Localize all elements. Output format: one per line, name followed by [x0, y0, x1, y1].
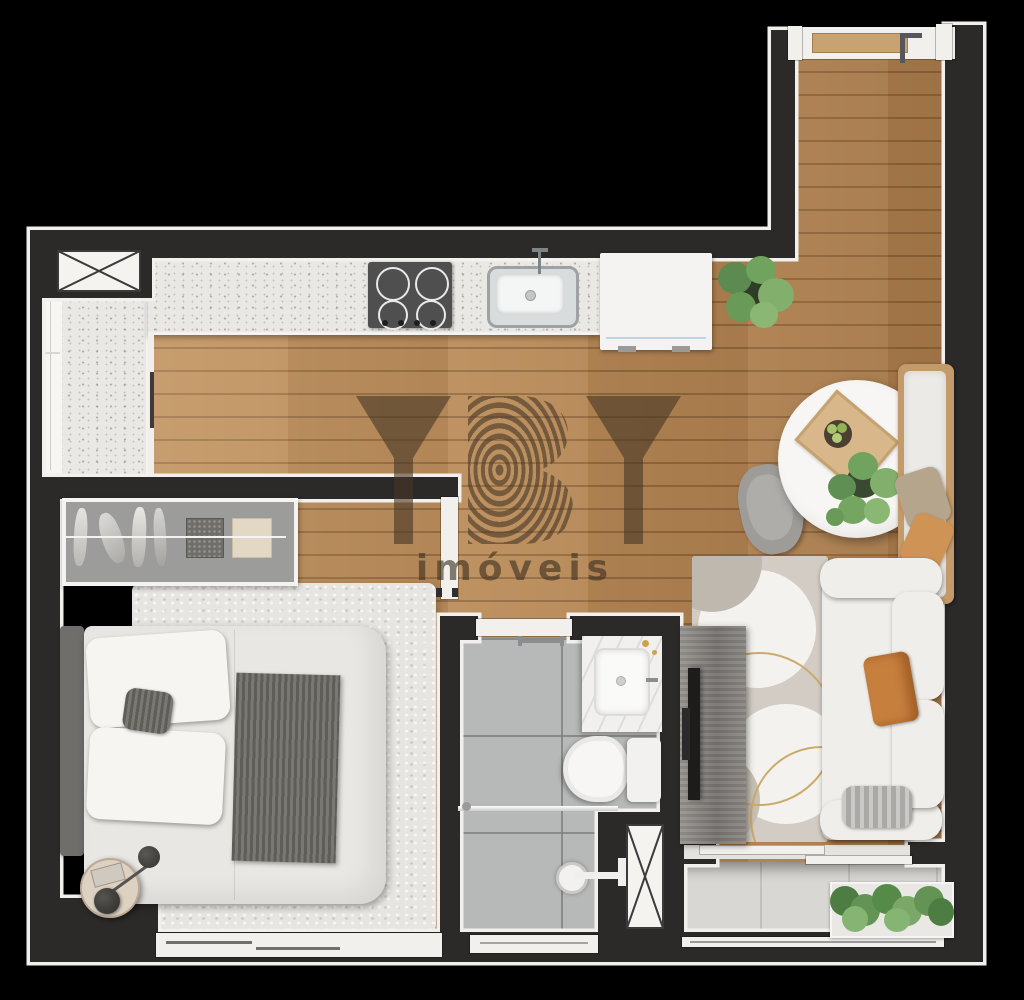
sliding-door-panel — [700, 846, 824, 854]
tv-stand — [682, 708, 690, 760]
cooktop-knob — [382, 320, 388, 326]
door-end-cap — [788, 26, 802, 60]
door-hinge-icon — [452, 588, 458, 597]
tv-console — [680, 626, 746, 844]
towel-bar-icon — [518, 636, 522, 646]
kitchen-plant — [714, 254, 798, 346]
window-pane-line — [256, 947, 340, 950]
door-hinge-icon — [436, 588, 442, 597]
fridge-foot — [672, 346, 690, 352]
balcony-planter — [830, 882, 954, 938]
sofa — [818, 554, 946, 844]
window-pane-line — [480, 942, 588, 944]
gold-accent — [652, 650, 657, 655]
burner — [415, 267, 449, 301]
bathroom-door — [476, 619, 572, 636]
fridge-trim — [606, 337, 706, 339]
basin-faucet — [646, 678, 658, 682]
bed-throw — [232, 673, 341, 864]
kitchen-sink — [487, 266, 579, 328]
cooktop-knob — [430, 320, 436, 326]
wardrobe — [62, 498, 298, 586]
fridge-foot — [618, 346, 636, 352]
bathroom-window — [470, 935, 598, 953]
floor-lamp-shade — [94, 888, 120, 914]
floor-plan-render: imóveis — [0, 0, 1024, 1000]
shaft-cross-icon — [627, 825, 663, 928]
shaft-cross-icon — [58, 251, 140, 291]
bedroom-door-leaf — [441, 497, 458, 599]
refrigerator — [600, 253, 712, 350]
faucet-icon — [532, 248, 548, 252]
cooktop — [368, 262, 452, 328]
towel-bar-icon — [518, 640, 564, 643]
shower-bracket — [618, 858, 626, 886]
gold-accent — [642, 640, 649, 647]
towel-bar-icon — [560, 636, 564, 646]
floor-lamp-joint — [138, 846, 160, 868]
clothes-item — [94, 510, 129, 566]
dining-plant — [826, 452, 906, 540]
folded-clothes-stack — [232, 518, 272, 558]
sink-drain — [525, 290, 536, 301]
toilet-tank — [627, 738, 661, 802]
shower-glass-partition — [458, 806, 618, 811]
sofa-blanket — [842, 786, 912, 828]
basin-drain — [616, 676, 626, 686]
sliding-door-panel — [806, 856, 912, 864]
burner — [376, 267, 410, 301]
window-pane-line — [166, 941, 252, 944]
door-end-cap — [936, 24, 952, 60]
toilet-bowl — [563, 736, 629, 802]
bathroom-vanity — [582, 636, 662, 732]
door-handle-icon — [900, 33, 922, 38]
balcony-entry-door-slab — [812, 33, 908, 53]
knit-cushion — [121, 687, 174, 735]
fruit-bowl — [824, 420, 852, 448]
bedroom-window — [156, 933, 442, 957]
bed — [84, 626, 386, 904]
bed-headboard — [60, 626, 84, 856]
shower-arm — [574, 872, 624, 879]
cooktop-knob — [398, 320, 404, 326]
partition-knob — [462, 802, 471, 811]
bed-pillow — [86, 727, 227, 826]
wardrobe-rail — [66, 536, 286, 538]
folded-clothes-stack — [186, 518, 224, 558]
window-pane-line — [690, 941, 936, 943]
cooktop-knob — [414, 320, 420, 326]
